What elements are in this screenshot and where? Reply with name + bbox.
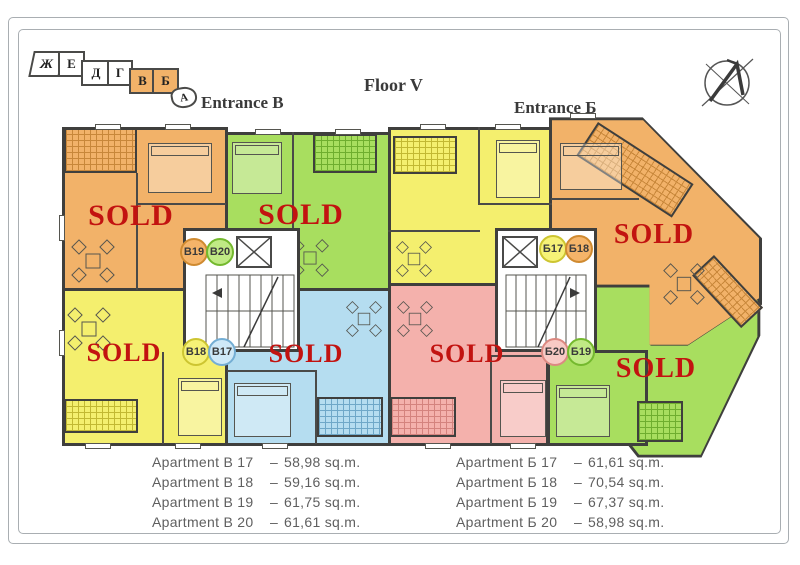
- apartment-name: Apartment B 17: [152, 454, 264, 470]
- bed: [560, 143, 622, 190]
- interior-wall: [227, 370, 317, 372]
- dash: –: [264, 454, 284, 470]
- key-section-label: Е: [67, 56, 76, 72]
- bed: [556, 385, 610, 437]
- bed: [496, 140, 540, 198]
- key-section-label: А: [179, 91, 189, 104]
- window: [255, 129, 281, 135]
- sold-label-b18: SOLD: [64, 338, 184, 368]
- window: [420, 124, 446, 130]
- interior-wall: [478, 203, 552, 205]
- badge-label: Б19: [571, 346, 591, 358]
- window: [495, 124, 521, 130]
- sold-label-b17: SOLD: [246, 339, 366, 369]
- interior-wall: [551, 198, 639, 200]
- window: [425, 443, 451, 449]
- apartment-name: Apartment B 20: [152, 514, 264, 530]
- balcony-b19-right: [637, 401, 683, 442]
- apartment-area: 61,61 sq.m.: [284, 514, 360, 530]
- badge-b19-right: Б19: [567, 338, 595, 366]
- listing-row: Apartment B 18 – 59,16 sq.m.: [152, 472, 360, 492]
- dining-table: [345, 300, 383, 338]
- apartment-area: 61,61 sq.m.: [588, 454, 664, 470]
- floor-title: Floor V: [364, 75, 423, 96]
- window: [510, 443, 536, 449]
- badge-label: Б20: [545, 346, 565, 358]
- badge-b20: B20: [206, 238, 234, 266]
- dining-table: [662, 262, 706, 306]
- dash: –: [568, 514, 588, 530]
- badge-label: B17: [212, 346, 232, 358]
- apartment-name: Apartment Б 19: [456, 494, 568, 510]
- listing-right: Apartment Б 17 – 61,61 sq.m. Apartment Б…: [456, 452, 664, 532]
- window: [95, 124, 121, 130]
- balcony-b18-left: [64, 399, 138, 433]
- dash: –: [264, 494, 284, 510]
- apartment-name: Apartment B 19: [152, 494, 264, 510]
- dining-table: [395, 240, 433, 278]
- badge-b19: B19: [180, 238, 208, 266]
- listing-row: Apartment B 19 – 61,75 sq.m.: [152, 492, 360, 512]
- badge-label: B18: [186, 346, 206, 358]
- dash: –: [264, 474, 284, 490]
- dining-table: [70, 238, 116, 284]
- listing-left: Apartment B 17 – 58,98 sq.m. Apartment B…: [152, 452, 360, 532]
- badge-b18-right: Б18: [565, 235, 593, 263]
- dash: –: [568, 454, 588, 470]
- key-section-label: В: [138, 73, 147, 89]
- listing-row: Apartment Б 17 – 61,61 sq.m.: [456, 452, 664, 472]
- apartment-name: Apartment Б 20: [456, 514, 568, 530]
- window: [59, 215, 65, 241]
- apartment-area: 61,75 sq.m.: [284, 494, 360, 510]
- dash: –: [568, 474, 588, 490]
- sold-label-b19: SOLD: [71, 199, 191, 233]
- balcony-b19-left: [64, 128, 137, 173]
- badge-b18: B18: [182, 338, 210, 366]
- listing-row: Apartment B 20 – 61,61 sq.m.: [152, 512, 360, 532]
- listing-row: Apartment Б 19 – 67,37 sq.m.: [456, 492, 664, 512]
- interior-wall: [388, 230, 480, 232]
- sold-label-b18-right: SOLD: [594, 219, 714, 251]
- window: [85, 443, 111, 449]
- window: [165, 124, 191, 130]
- badge-label: Б17: [543, 243, 563, 255]
- key-section-label: Д: [92, 65, 101, 81]
- entrance-left-title: Entrance B: [201, 93, 284, 113]
- bed: [148, 143, 212, 193]
- badge-b17-right: Б17: [539, 235, 567, 263]
- balcony-b20-right: [390, 397, 456, 437]
- interior-wall: [478, 127, 480, 205]
- badge-b20-right: Б20: [541, 338, 569, 366]
- bed: [234, 383, 291, 437]
- badge-b17: B17: [208, 338, 236, 366]
- sold-label-b20: SOLD: [241, 198, 361, 232]
- listing-row: Apartment Б 18 – 70,54 sq.m.: [456, 472, 664, 492]
- bed: [178, 378, 222, 436]
- sold-label-b19-right: SOLD: [596, 353, 716, 385]
- apartment-name: Apartment Б 17: [456, 454, 568, 470]
- key-section-label: Г: [116, 65, 124, 81]
- apartment-area: 67,37 sq.m.: [588, 494, 664, 510]
- dash: –: [568, 494, 588, 510]
- apartment-area: 70,54 sq.m.: [588, 474, 664, 490]
- badge-label: B19: [184, 246, 204, 258]
- apartment-area: 58,98 sq.m.: [588, 514, 664, 530]
- floor-plan-page: Ж Е Д Г В Б А Entrance B Floor V Entranc…: [0, 0, 800, 565]
- listing-row: Apartment Б 20 – 58,98 sq.m.: [456, 512, 664, 532]
- apartment-area: 59,16 sq.m.: [284, 474, 360, 490]
- apartment-name: Apartment B 18: [152, 474, 264, 490]
- window: [335, 129, 361, 135]
- badge-label: Б18: [569, 243, 589, 255]
- balcony-b17-right: [393, 136, 457, 174]
- badge-label: B20: [210, 246, 230, 258]
- dining-table: [396, 300, 434, 338]
- compass-icon: [697, 55, 759, 113]
- balcony-b20-left: [313, 134, 377, 173]
- dash: –: [264, 514, 284, 530]
- interior-wall: [315, 370, 317, 444]
- sold-label-b20-right: SOLD: [407, 339, 527, 369]
- window: [175, 443, 201, 449]
- key-section-label: Ж: [38, 56, 54, 72]
- window: [262, 443, 288, 449]
- bed: [500, 380, 546, 437]
- listing-row: Apartment B 17 – 58,98 sq.m.: [152, 452, 360, 472]
- window: [570, 113, 596, 119]
- balcony-b17-left: [317, 397, 383, 437]
- key-section-label: Б: [161, 73, 170, 89]
- apartment-area: 58,98 sq.m.: [284, 454, 360, 470]
- apartment-name: Apartment Б 18: [456, 474, 568, 490]
- bed: [232, 142, 282, 194]
